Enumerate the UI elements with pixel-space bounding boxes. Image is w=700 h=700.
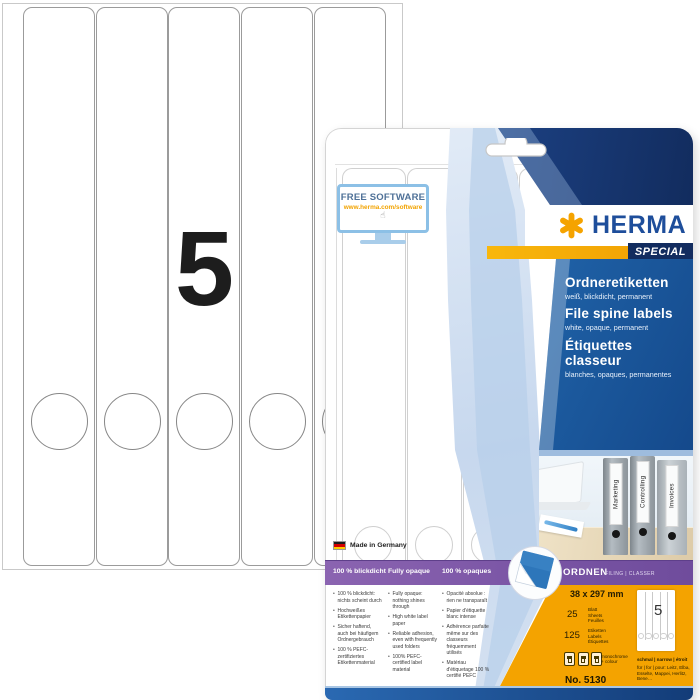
made-in-germany: Made in Germany — [333, 541, 407, 550]
binder-finger-hole — [668, 532, 676, 540]
binder-label: Invoices — [666, 465, 679, 527]
product-desc-fr: blanches, opaques, permanentes — [565, 371, 689, 379]
inner-punch-hole — [415, 526, 453, 564]
binder-label: Controlling — [636, 461, 649, 523]
free-software-title: FREE SOFTWARE — [340, 192, 426, 203]
brand-name: HERMA — [592, 211, 686, 240]
sheet-digit: 5 — [153, 216, 256, 322]
diagram-digit: 5 — [654, 602, 662, 619]
product-title-de: Ordneretiketten — [565, 275, 689, 291]
binder: Controlling — [630, 456, 655, 555]
monitor-stand — [375, 233, 391, 240]
germany-flag-icon — [333, 541, 346, 550]
product-desc-de: weiß, blickdicht, permanent — [565, 293, 689, 301]
monitor-base — [360, 240, 406, 244]
spec-sheets-units: Blatt Sheets Feuilles — [588, 607, 604, 624]
compatibility-note: für | for | pour: Leitz, Elba, Esselte, … — [637, 665, 693, 682]
category-subtitle: FILING | CLASSER — [605, 571, 655, 577]
spec-labels-count: 125 — [564, 630, 580, 641]
product-shot: 5 HERMA — [0, 0, 700, 700]
brand-logo: HERMA — [525, 205, 693, 246]
package-card: HERMA SPECIAL Ordneretiketten weiß, blic… — [325, 128, 693, 700]
features-de: 100 % blickdicht: nichts scheint durch H… — [333, 591, 383, 670]
format-note: schmal | narrow | étroit — [637, 657, 693, 662]
product-title-en: File spine labels — [565, 306, 689, 322]
spec-sheets-count: 25 — [567, 609, 578, 620]
laptop-base — [539, 502, 591, 510]
spec-labels-units: Etiketten Labels Étiquettes — [588, 628, 608, 645]
bottom-edge — [325, 688, 693, 700]
binder-finger-hole — [639, 528, 647, 536]
features-en: Fully opaque: nothing shines through Hig… — [388, 591, 438, 677]
printer-icon — [578, 652, 589, 666]
binder: Invoices — [657, 460, 687, 555]
punch-hole-circle — [31, 393, 88, 450]
binder-group: Marketing Controlling Invoices — [603, 456, 687, 555]
product-desc-en: white, opaque, permanent — [565, 324, 689, 332]
features-fr: Opacité absolue : rien ne transparaît Pa… — [442, 591, 492, 683]
punch-hole-circle — [104, 393, 161, 450]
product-titles: Ordneretiketten weiß, blickdicht, perman… — [565, 275, 689, 385]
category-name: ORDNEN — [563, 567, 608, 578]
order-number: No. 5130 — [565, 675, 606, 686]
feature-header-en: Fully opaque — [388, 568, 430, 575]
binder-label: Marketing — [609, 463, 622, 525]
binder: Marketing — [603, 458, 628, 555]
punch-hole-circle — [249, 393, 306, 450]
layout-diagram: 5 — [637, 590, 675, 651]
punch-hole-circle — [176, 393, 233, 450]
hand-cursor-icon: ☝ — [340, 211, 426, 220]
print-note: monochrome + colour — [601, 654, 631, 665]
printer-compatibility-icons — [564, 652, 602, 666]
spec-size: 38 x 297 mm — [570, 589, 624, 599]
hanger-hole — [483, 138, 549, 160]
spine-strip — [23, 7, 95, 566]
label-fold-emblem — [507, 545, 563, 601]
herma-asterisk-icon — [558, 212, 585, 239]
product-title-fr: Étiquettes classeur — [565, 338, 689, 369]
printer-icon — [564, 652, 575, 666]
binder-finger-hole — [612, 530, 620, 538]
feature-header-de: 100 % blickdicht — [333, 568, 386, 575]
special-badge: SPECIAL — [628, 243, 693, 261]
free-software-badge: FREE SOFTWARE www.herma.com/software ☝ — [337, 184, 429, 244]
monitor-icon: FREE SOFTWARE www.herma.com/software ☝ — [337, 184, 429, 233]
feature-header-fr: 100 % opaques — [442, 568, 491, 575]
